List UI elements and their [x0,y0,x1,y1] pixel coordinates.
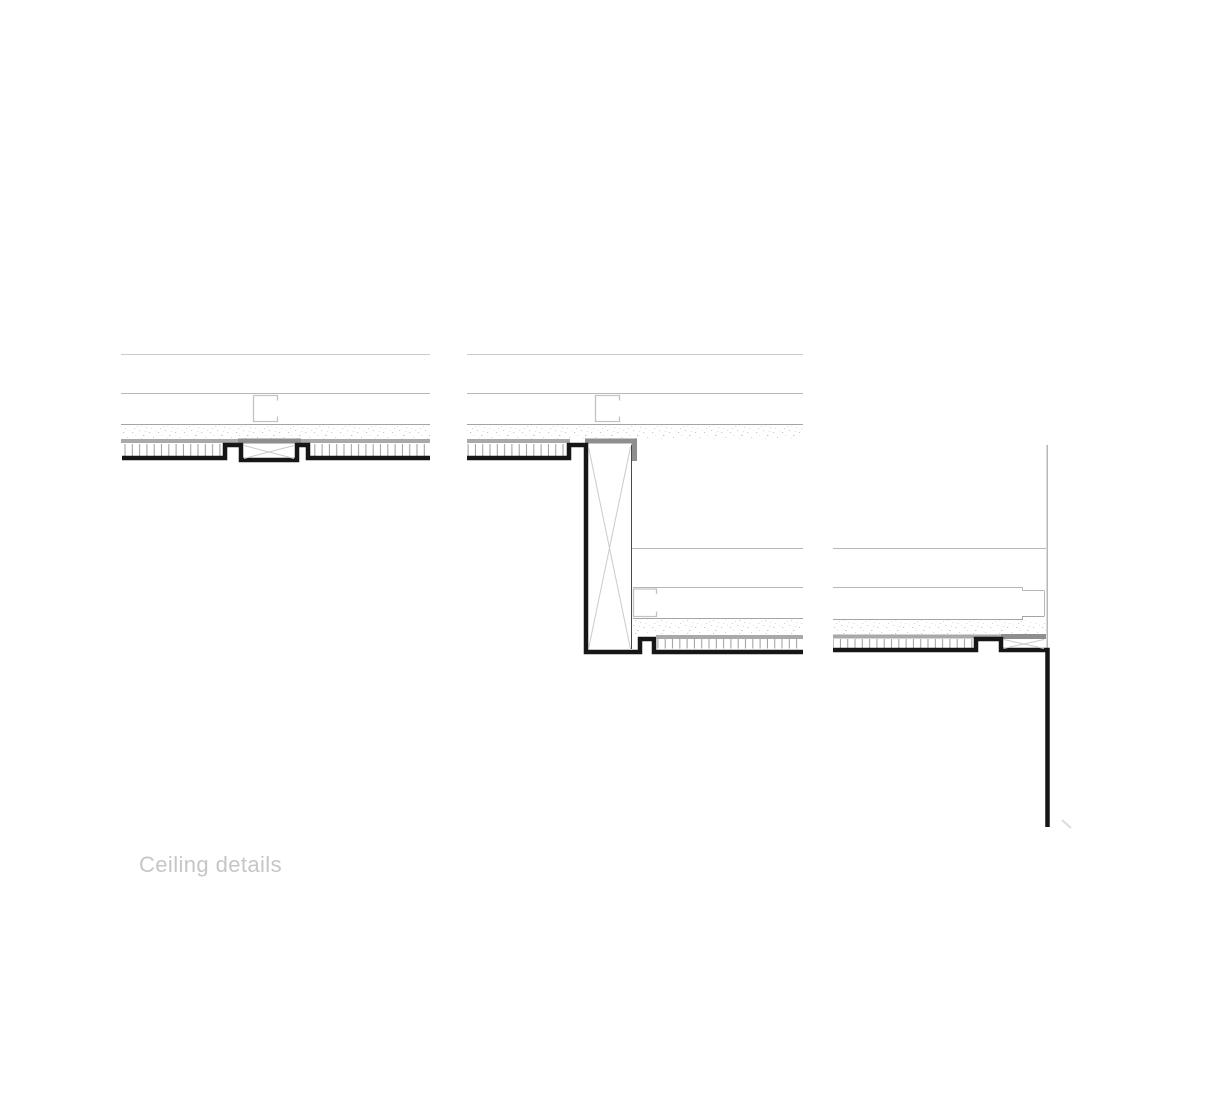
detail-right [833,445,1071,828]
screed-stipple-layer [121,426,430,439]
break-tick [1062,820,1071,828]
batten-hatch-layer [122,444,223,456]
membrane-band [467,439,570,443]
board-line-with-channel-flange [833,617,1044,620]
cross-brace [244,446,294,459]
beam-cap-side [632,443,638,461]
c-channel-profile [634,589,657,617]
cross-brace [1004,640,1045,649]
recess-cap-band [1001,634,1046,639]
detail-middle-top [467,355,803,462]
soffit-and-wall-line [833,639,1048,827]
ceiling-detail-drawing [0,0,1211,1100]
cavity-line-with-channel-flange [833,588,1044,591]
beam-cross-brace [589,447,631,649]
batten-hatch-layer [467,444,567,456]
batten-hatch-layer [657,639,803,649]
batten-hatch-layer [833,639,974,649]
beam-cap-band [585,439,637,444]
batten-hatch-layer [308,444,430,456]
recess-cap-band [238,439,301,444]
membrane-band [656,635,803,639]
c-channel-profile [596,396,620,422]
detail-left [121,355,430,461]
detail-middle-lower [467,445,803,652]
screed-stipple-layer [633,620,803,635]
screed-stipple-layer [833,621,1046,635]
screed-stipple-layer [467,426,803,439]
drawing-title: Ceiling details [139,852,282,878]
c-channel-profile [254,396,278,422]
